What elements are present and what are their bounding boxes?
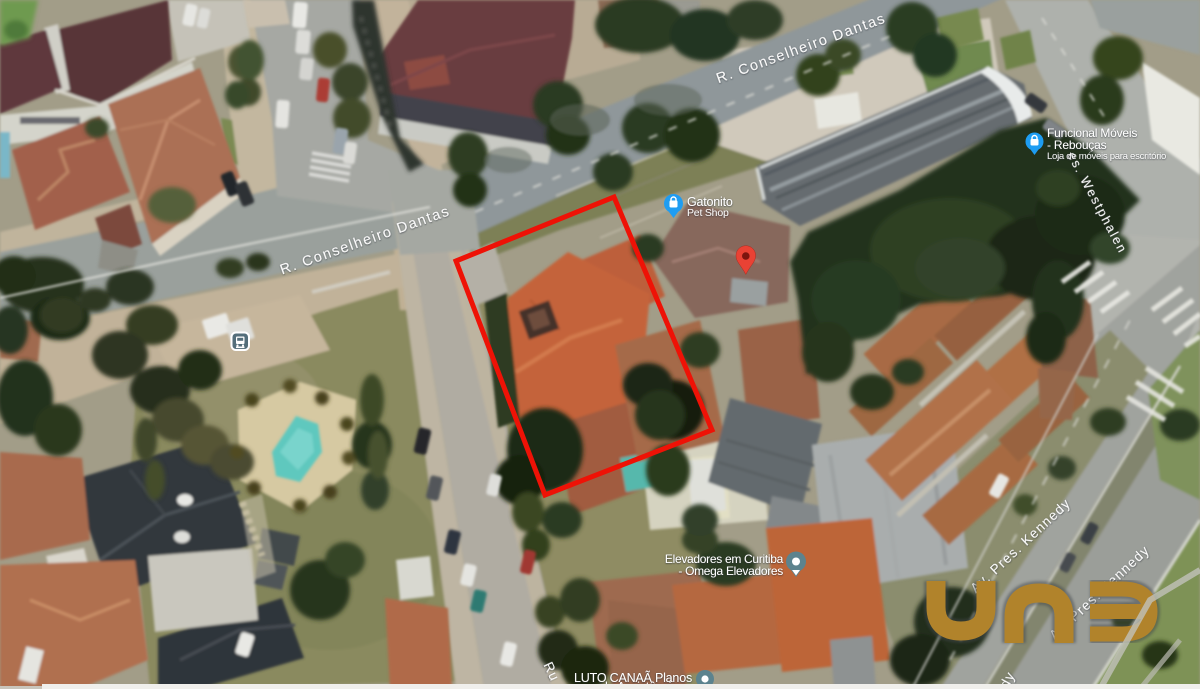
svg-text:- Omega Elevadores: - Omega Elevadores bbox=[678, 564, 783, 578]
svg-text:Loja de móveis para escritório: Loja de móveis para escritório bbox=[1047, 151, 1166, 162]
svg-text:- Rebouças: - Rebouças bbox=[1047, 138, 1107, 152]
svg-text:Pet Shop: Pet Shop bbox=[687, 207, 729, 219]
